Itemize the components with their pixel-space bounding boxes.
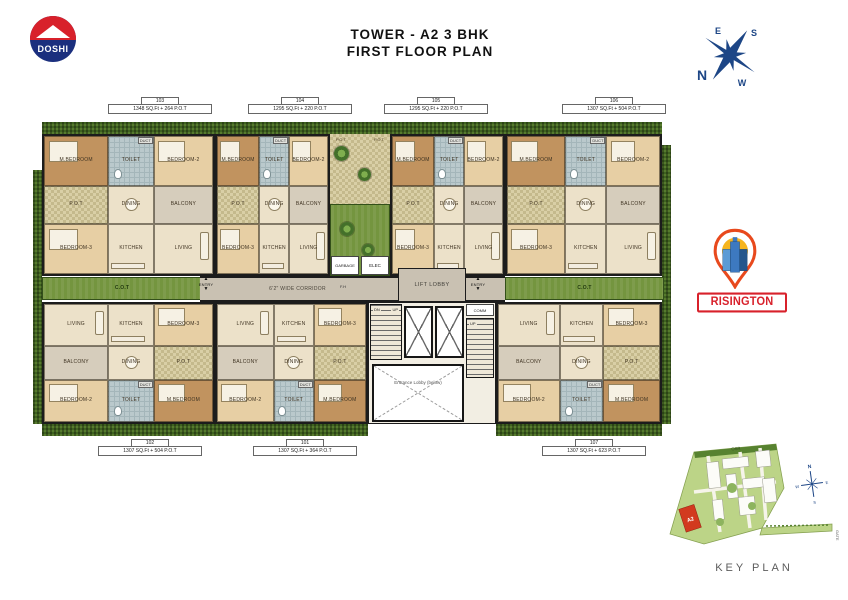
room-living: LIVING bbox=[217, 304, 274, 346]
room-label: BEDROOM-2 bbox=[513, 398, 545, 404]
room-dining: DINING bbox=[108, 346, 154, 379]
room-label: DINING bbox=[284, 360, 303, 366]
room-label: DINING bbox=[440, 202, 459, 208]
comm-label: COMM bbox=[474, 308, 487, 313]
room-label: P.O.T bbox=[69, 202, 82, 208]
room-label: BEDROOM-3 bbox=[167, 322, 199, 328]
room-dining: DINING bbox=[108, 186, 154, 225]
room-label: BEDROOM-3 bbox=[520, 246, 552, 252]
unit-102: LIVINGKITCHENBEDROOM-3BALCONYDININGP.O.T… bbox=[42, 302, 215, 424]
arrow-down-icon: ▼ bbox=[476, 287, 481, 292]
tree-icon bbox=[334, 146, 349, 161]
room-label: M.BEDROOM bbox=[323, 398, 356, 404]
room-label: LIVING bbox=[175, 246, 193, 252]
room-bedroom: BEDROOM-2 bbox=[498, 380, 560, 422]
room-kitchen: KITCHEN bbox=[434, 224, 464, 274]
room-label: BALCONY bbox=[516, 360, 541, 366]
room-balcony: BALCONY bbox=[44, 346, 108, 379]
room-label: KITCHEN bbox=[282, 322, 305, 328]
room-living: LIVING bbox=[464, 224, 503, 274]
room-label: KITCHEN bbox=[262, 246, 285, 252]
room-label: DINING bbox=[265, 202, 284, 208]
unit-area: 1307 SQ.Ft + 623 P.O.T bbox=[542, 446, 646, 456]
room-toilet: TOILETDUCT bbox=[565, 136, 606, 186]
room-label: TOILET bbox=[265, 158, 284, 164]
garbage-room: GARBAGE bbox=[331, 256, 359, 275]
entry-marker-left: ▲ ENTRY ▼ bbox=[196, 277, 216, 292]
lift-lobby: LIFT LOBBY bbox=[398, 268, 466, 302]
unit-103: M.BEDROOMTOILETDUCTBEDROOM-2P.O.TDININGB… bbox=[42, 134, 215, 276]
room-toilet: TOILETDUCT bbox=[434, 136, 464, 186]
room-label: BEDROOM-2 bbox=[617, 158, 649, 164]
room-dining: DINING bbox=[434, 186, 464, 225]
room-toilet: TOILETDUCT bbox=[560, 380, 604, 422]
tree-icon bbox=[340, 222, 354, 236]
tree-icon bbox=[362, 244, 374, 256]
staircase-right: UP bbox=[466, 318, 494, 378]
room-bedroom: BEDROOM-3 bbox=[217, 224, 259, 274]
floor-plan-sheet: DOSHI TOWER - A2 3 BHK FIRST FLOOR PLAN … bbox=[0, 0, 848, 600]
key-compass-n: N bbox=[807, 464, 812, 470]
room-label: BEDROOM-3 bbox=[616, 322, 648, 328]
room-label: TOILET bbox=[122, 398, 141, 404]
room-label: P.O.T bbox=[406, 202, 419, 208]
room-label: P.O.T bbox=[625, 360, 638, 366]
room-label: KITCHEN bbox=[119, 322, 142, 328]
room-bedroom: BEDROOM-3 bbox=[392, 224, 434, 274]
room-label: DINING bbox=[122, 360, 141, 366]
room-label: P.O.T bbox=[231, 202, 244, 208]
room-master: M.BEDROOM bbox=[154, 380, 213, 422]
room-bedroom: BEDROOM-3 bbox=[44, 224, 108, 274]
room-label: DINING bbox=[576, 202, 595, 208]
room-label: LIVING bbox=[475, 246, 493, 252]
pot-label: P.O.T bbox=[336, 137, 346, 142]
room-master: M.BEDROOM bbox=[44, 136, 108, 186]
elec-label: ELEC bbox=[369, 263, 381, 268]
room-label: KITCHEN bbox=[574, 246, 597, 252]
room-label: BEDROOM-3 bbox=[222, 246, 254, 252]
room-bedroom: BEDROOM-2 bbox=[44, 380, 108, 422]
room-dining: DINING bbox=[560, 346, 604, 379]
room-dining: DINING bbox=[274, 346, 314, 379]
room-living: LIVING bbox=[289, 224, 328, 274]
room-label: BEDROOM-3 bbox=[397, 246, 429, 252]
duct-label: DUCT bbox=[448, 137, 463, 144]
room-label: KITCHEN bbox=[119, 246, 142, 252]
fire-hose-label: F.H bbox=[340, 284, 346, 289]
room-pot: P.O.T bbox=[154, 346, 213, 379]
room-toilet: TOILETDUCT bbox=[108, 380, 154, 422]
room-label: DINING bbox=[572, 360, 591, 366]
room-bedroom: BEDROOM-2 bbox=[154, 136, 213, 186]
room-bedroom: BEDROOM-2 bbox=[464, 136, 503, 186]
unit-number: 105 bbox=[417, 97, 455, 104]
stair-up-label: UP bbox=[391, 307, 399, 312]
room-kitchen: KITCHEN bbox=[108, 304, 154, 346]
room-label: M.BEDROOM bbox=[60, 158, 93, 164]
room-label: M.BEDROOM bbox=[221, 158, 254, 164]
comm-room: COMM bbox=[466, 304, 494, 316]
unit-105: M.BEDROOMTOILETDUCTBEDROOM-2P.O.TDININGB… bbox=[390, 134, 505, 276]
room-label: TOILET bbox=[440, 158, 459, 164]
unit-area-label-105: 1051295 SQ.Ft + 220 P.O.T bbox=[384, 97, 488, 114]
room-balcony: BALCONY bbox=[498, 346, 560, 379]
hedge-top bbox=[42, 122, 662, 134]
key-plan-label: KEY PLAN bbox=[664, 562, 844, 574]
room-label: DINING bbox=[122, 202, 141, 208]
key-compass-w: W bbox=[795, 484, 800, 490]
unit-number: 106 bbox=[595, 97, 633, 104]
room-bedroom: BEDROOM-3 bbox=[603, 304, 660, 346]
room-label: LIVING bbox=[520, 322, 538, 328]
unit-area-label-107: 1071307 SQ.Ft + 623 P.O.T bbox=[542, 439, 646, 456]
room-balcony: BALCONY bbox=[289, 186, 328, 225]
duct-label: DUCT bbox=[587, 381, 602, 388]
room-label: LIVING bbox=[624, 246, 642, 252]
room-label: BEDROOM-2 bbox=[293, 158, 325, 164]
unit-area-label-102: 1021307 SQ.Ft + 504 P.O.T bbox=[98, 439, 202, 456]
room-kitchen: KITCHEN bbox=[565, 224, 606, 274]
unit-101: LIVINGKITCHENBEDROOM-3BALCONYDININGP.O.T… bbox=[215, 302, 368, 424]
room-bedroom: BEDROOM-3 bbox=[154, 304, 213, 346]
unit-number: 101 bbox=[286, 439, 324, 446]
room-toilet: TOILETDUCT bbox=[108, 136, 154, 186]
key-plan: OSR A2 GATE bbox=[664, 436, 844, 560]
room-kitchen: KITCHEN bbox=[108, 224, 154, 274]
hedge-left bbox=[33, 170, 42, 424]
lift-shaft-1 bbox=[404, 306, 433, 358]
unit-area-label-106: 1061307 SQ.Ft + 504 P.O.T bbox=[562, 97, 666, 114]
room-label: M.BEDROOM bbox=[519, 158, 552, 164]
room-balcony: BALCONY bbox=[464, 186, 503, 225]
cot-strip-right: C.O.T bbox=[505, 277, 664, 300]
room-label: TOILET bbox=[572, 398, 591, 404]
unit-area: 1348 SQ.Ft + 264 P.O.T bbox=[108, 104, 212, 114]
room-master: M.BEDROOM bbox=[392, 136, 434, 186]
room-pot: P.O.T bbox=[314, 346, 366, 379]
double-height-cross-icon bbox=[374, 366, 462, 420]
osr-label: OSR bbox=[731, 446, 740, 452]
room-label: BALCONY bbox=[171, 202, 196, 208]
room-label: M.BEDROOM bbox=[615, 398, 648, 404]
room-bedroom: BEDROOM-3 bbox=[507, 224, 565, 274]
cot-label: C.O.T bbox=[577, 286, 591, 292]
room-label: P.O.T bbox=[333, 360, 346, 366]
room-label: BALCONY bbox=[233, 360, 258, 366]
unit-area: 1295 SQ.Ft + 220 P.O.T bbox=[248, 104, 352, 114]
room-label: BEDROOM-2 bbox=[167, 158, 199, 164]
duct-label: DUCT bbox=[298, 381, 313, 388]
room-label: BEDROOM-3 bbox=[60, 246, 92, 252]
room-label: KITCHEN bbox=[437, 246, 460, 252]
stair-up-label: UP bbox=[469, 321, 477, 326]
room-label: P.O.T bbox=[177, 360, 190, 366]
room-bedroom: BEDROOM-2 bbox=[606, 136, 660, 186]
room-pot: P.O.T bbox=[44, 186, 108, 225]
room-living: LIVING bbox=[498, 304, 560, 346]
elec-room: ELEC bbox=[361, 256, 389, 275]
room-pot: P.O.T bbox=[392, 186, 434, 225]
room-dining: DINING bbox=[565, 186, 606, 225]
room-label: BALCONY bbox=[63, 360, 88, 366]
unit-area: 1307 SQ.Ft + 504 P.O.T bbox=[98, 446, 202, 456]
room-label: TOILET bbox=[284, 398, 303, 404]
room-master: M.BEDROOM bbox=[507, 136, 565, 186]
unit-area: 1307 SQ.Ft + 364 P.O.T bbox=[253, 446, 357, 456]
unit-area: 1307 SQ.Ft + 504 P.O.T bbox=[562, 104, 666, 114]
unit-number: 104 bbox=[281, 97, 319, 104]
unit-number: 103 bbox=[141, 97, 179, 104]
unit-107: LIVINGKITCHENBEDROOM-3BALCONYDININGP.O.T… bbox=[496, 302, 662, 424]
unit-106: M.BEDROOMTOILETDUCTBEDROOM-2P.O.TDININGB… bbox=[505, 134, 662, 276]
tree-icon bbox=[358, 168, 371, 181]
duct-label: DUCT bbox=[273, 137, 288, 144]
room-label: TOILET bbox=[122, 158, 141, 164]
room-label: KITCHEN bbox=[570, 322, 593, 328]
room-balcony: BALCONY bbox=[217, 346, 274, 379]
unit-area: 1295 SQ.Ft + 220 P.O.T bbox=[384, 104, 488, 114]
entrance-lobby: Entrance Lobby (below) bbox=[372, 364, 464, 422]
room-bedroom: BEDROOM-2 bbox=[289, 136, 328, 186]
room-label: BEDROOM-2 bbox=[60, 398, 92, 404]
unit-area-label-104: 1041295 SQ.Ft + 220 P.O.T bbox=[248, 97, 352, 114]
lift-shaft-2 bbox=[435, 306, 464, 358]
room-kitchen: KITCHEN bbox=[259, 224, 289, 274]
entry-marker-right: ▲ ENTRY ▼ bbox=[468, 277, 488, 292]
room-toilet: TOILETDUCT bbox=[274, 380, 314, 422]
unit-area-label-103: 1031348 SQ.Ft + 264 P.O.T bbox=[108, 97, 212, 114]
room-label: BEDROOM-3 bbox=[324, 322, 356, 328]
hedge-bottom-right bbox=[496, 424, 662, 436]
cot-label: C.O.T bbox=[115, 286, 129, 292]
room-label: P.O.T bbox=[529, 202, 542, 208]
room-label: BALCONY bbox=[296, 202, 321, 208]
room-kitchen: KITCHEN bbox=[560, 304, 604, 346]
unit-number: 107 bbox=[575, 439, 613, 446]
key-plan-compass-icon: N E S W bbox=[792, 462, 831, 507]
room-living: LIVING bbox=[606, 224, 660, 274]
room-balcony: BALCONY bbox=[606, 186, 660, 225]
corridor-label: 6'2" WIDE CORRIDOR bbox=[200, 278, 395, 300]
room-label: BALCONY bbox=[621, 202, 646, 208]
room-label: M.BEDROOM bbox=[167, 398, 200, 404]
key-compass-s: S bbox=[813, 500, 817, 505]
room-label: LIVING bbox=[67, 322, 85, 328]
duct-label: DUCT bbox=[590, 137, 605, 144]
unit-area-label-101: 1011307 SQ.Ft + 364 P.O.T bbox=[253, 439, 357, 456]
room-label: BEDROOM-2 bbox=[229, 398, 261, 404]
room-label: BALCONY bbox=[471, 202, 496, 208]
hedge-bottom-left bbox=[42, 424, 368, 436]
room-balcony: BALCONY bbox=[154, 186, 213, 225]
room-label: BEDROOM-2 bbox=[468, 158, 500, 164]
room-label: M.BEDROOM bbox=[396, 158, 429, 164]
room-pot: P.O.T bbox=[603, 346, 660, 379]
garbage-label: GARBAGE bbox=[335, 263, 355, 268]
room-living: LIVING bbox=[44, 304, 108, 346]
unit-104: M.BEDROOMTOILETDUCTBEDROOM-2P.O.TDININGB… bbox=[215, 134, 330, 276]
cot-strip-left: C.O.T bbox=[42, 277, 202, 300]
entrance-lobby-label: Entrance Lobby (below) bbox=[374, 380, 462, 386]
duct-label: DUCT bbox=[138, 137, 153, 144]
staircase-left: DN UP bbox=[370, 304, 402, 360]
room-toilet: TOILETDUCT bbox=[259, 136, 289, 186]
room-bedroom: BEDROOM-3 bbox=[314, 304, 366, 346]
room-master: M.BEDROOM bbox=[603, 380, 660, 422]
room-master: M.BEDROOM bbox=[314, 380, 366, 422]
pot-label: P.O.T bbox=[374, 137, 384, 142]
room-label: TOILET bbox=[576, 158, 595, 164]
gate-label: GATE bbox=[835, 530, 840, 541]
room-dining: DINING bbox=[259, 186, 289, 225]
room-master: M.BEDROOM bbox=[217, 136, 259, 186]
room-label: LIVING bbox=[300, 246, 318, 252]
room-pot: P.O.T bbox=[507, 186, 565, 225]
room-pot: P.O.T bbox=[217, 186, 259, 225]
arrow-down-icon: ▼ bbox=[204, 287, 209, 292]
room-kitchen: KITCHEN bbox=[274, 304, 314, 346]
lift-lobby-label: LIFT LOBBY bbox=[414, 282, 449, 288]
duct-label: DUCT bbox=[138, 381, 153, 388]
key-compass-e: E bbox=[825, 480, 829, 485]
room-living: LIVING bbox=[154, 224, 213, 274]
room-label: LIVING bbox=[237, 322, 255, 328]
unit-number: 102 bbox=[131, 439, 169, 446]
stair-dn-label: DN bbox=[373, 307, 381, 312]
room-bedroom: BEDROOM-2 bbox=[217, 380, 274, 422]
